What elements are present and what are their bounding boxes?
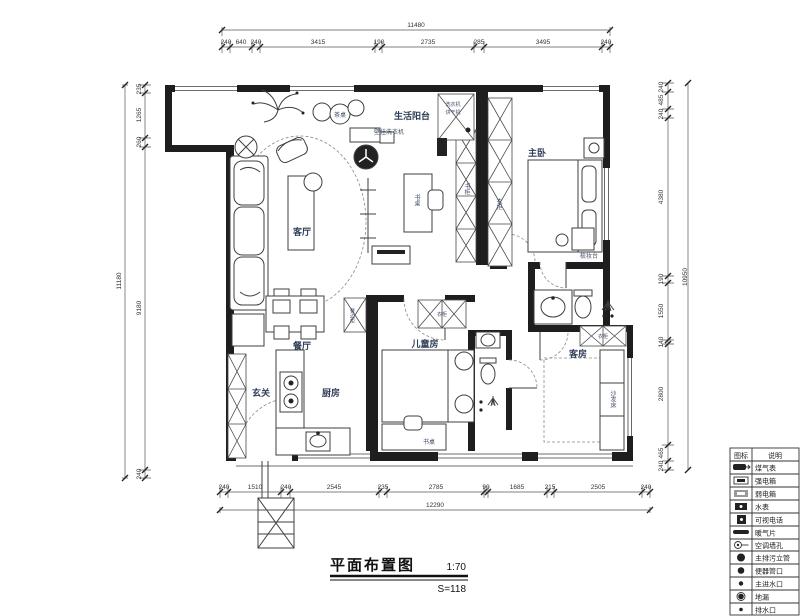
label-wall-washer: 壁挂洗衣机: [374, 128, 404, 136]
dim-bottom-10: 240: [641, 484, 652, 491]
side-table-square: [232, 314, 264, 346]
drain-outlet-icon: [739, 608, 743, 612]
dim-bottom-4: 235: [378, 484, 389, 491]
dim-right-1: 485: [658, 94, 665, 105]
window-right-master: [602, 168, 611, 240]
dining-furniture: [266, 289, 324, 339]
drying-rack: [360, 178, 376, 253]
toilet-pipe-icon: [738, 567, 745, 574]
dim-bottom-1: 1510: [248, 484, 263, 491]
entry-steps: [258, 461, 294, 548]
gas-meter-icon: [733, 464, 750, 470]
kids-chair: [404, 416, 422, 430]
dim-bottom-8: 215: [545, 484, 556, 491]
dim-top-4: 190: [374, 39, 385, 46]
tv-stand: [372, 246, 410, 264]
dim-right-8: 465: [658, 447, 665, 458]
window-top-living: [290, 84, 354, 93]
legend-label: 主进水口: [755, 580, 783, 589]
pillow: [455, 395, 473, 413]
label-kids-room: 儿童房: [410, 338, 438, 349]
window-right-guest: [626, 358, 634, 436]
dimension-right: 10950 240 485 240 4380 190 1550 140 2800…: [658, 80, 691, 473]
master-wardrobe-cabinet: [488, 98, 512, 266]
dim-bottom-9: 2505: [591, 484, 606, 491]
legend-label: 可视电话: [755, 516, 783, 525]
tea-table-chair: [313, 103, 331, 121]
label-bookcase: 书柜: [463, 182, 470, 196]
water-heater: [437, 138, 447, 156]
label-living-room: 客厅: [292, 226, 311, 237]
label-sideboard: 餐边柜: [349, 307, 355, 324]
dim-bottom-2: 240: [281, 484, 292, 491]
radiator-icon: [733, 530, 749, 534]
guest-room-door: [540, 332, 568, 360]
label-guest-wardrobe: 衣柜: [598, 333, 608, 340]
dim-right-9: 240: [658, 460, 665, 471]
toilet: [480, 358, 496, 384]
shared-bath-fixtures: [476, 332, 500, 412]
dim-top-3: 3415: [311, 39, 326, 46]
label-kitchen: 厨房: [322, 387, 340, 398]
study-chair: [428, 190, 443, 210]
legend-label: 煤气表: [755, 464, 776, 473]
master-bath-door: [540, 262, 566, 288]
nightstand: [584, 138, 604, 158]
dim-right-4: 190: [658, 273, 665, 284]
label-master-bedroom: 主卧: [528, 147, 546, 158]
label-entry: 玄关: [252, 387, 270, 398]
sideboard-cabinet: [344, 298, 366, 332]
bookcase-cabinet: [456, 130, 476, 262]
entry-shoe-cabinet: [228, 354, 246, 458]
tea-table-chair: [348, 100, 364, 116]
drawing-sub: S=118: [438, 584, 467, 595]
kids-room-furniture: [382, 350, 474, 450]
study-furniture: [404, 174, 443, 232]
sofa: [230, 156, 268, 310]
legend-header-icon: 图标: [734, 451, 748, 460]
label-balcony-cabinet-1: 洗衣机: [445, 101, 460, 108]
window-top-balcony: [175, 84, 237, 93]
pillow: [582, 166, 596, 202]
label-master-wardrobe: 衣柜: [495, 197, 502, 211]
window-bottom-kids: [438, 451, 522, 462]
window-bottom-guest: [538, 451, 612, 462]
pillow: [455, 352, 473, 370]
dim-left-3: 9180: [136, 300, 143, 315]
dim-right-0: 240: [658, 81, 665, 92]
floor-drain-icon: [737, 593, 745, 601]
dim-left-0: 235: [136, 83, 143, 94]
dim-left-4: 240: [136, 468, 143, 479]
window-top-master: [543, 84, 599, 93]
legend-label: 空调墙孔: [755, 541, 783, 550]
drawing-scale: 1:70: [447, 562, 467, 573]
toilet: [574, 290, 592, 318]
title-block: 平面布置图 1:70 S=118: [330, 556, 468, 595]
label-sofa-bed: 沙发床: [609, 390, 616, 409]
dim-bottom-7: 1685: [510, 484, 525, 491]
dim-right-5: 1550: [658, 303, 665, 318]
weak-power-box-icon: [734, 490, 748, 497]
label-kids-desk: 书桌: [423, 438, 435, 446]
legend-label: 暖气片: [755, 529, 776, 538]
balcony-corner-cabinet: [438, 94, 474, 140]
label-tea-table: 茶桌: [334, 111, 346, 119]
master-bath-fixtures: [534, 290, 614, 324]
dim-bottom-0: 240: [219, 484, 230, 491]
dim-right-2: 240: [658, 108, 665, 119]
dim-top-5: 2735: [421, 39, 436, 46]
shower-drain: [479, 396, 498, 412]
dim-bottom-total: 12290: [426, 502, 444, 509]
dimension-left: 11180 235 1265 260 9180 240: [116, 82, 151, 481]
label-living-balcony: 生活阳台: [394, 110, 430, 121]
dim-bottom-6: 90: [482, 484, 490, 491]
water-meter-icon: [735, 503, 747, 510]
legend-label: 排水口: [755, 606, 776, 615]
video-intercom-icon: [737, 515, 746, 524]
main-sewage-riser-icon: [737, 554, 745, 562]
dim-left-2: 260: [136, 136, 143, 147]
legend-header-desc: 说明: [768, 451, 782, 460]
drawing-title: 平面布置图: [330, 556, 415, 574]
strong-power-box-icon: [734, 477, 748, 484]
main-water-inlet-icon: [739, 581, 743, 585]
dim-top-1: 640: [236, 39, 247, 46]
dim-right-total: 10950: [682, 268, 689, 286]
dim-left-1: 1265: [136, 107, 143, 122]
ac-wall-hole-icon: [735, 542, 749, 549]
label-study-desk: 书桌: [413, 193, 420, 207]
kitchen-furniture: [276, 350, 350, 455]
label-guest-room: 客房: [568, 348, 587, 359]
guest-bed-outline: [544, 358, 600, 442]
vanity-counter: [534, 290, 572, 324]
dim-top-8: 240: [601, 39, 612, 46]
dim-right-7: 2800: [658, 386, 665, 401]
legend-label: 强电箱: [755, 477, 776, 486]
dim-top-7: 3495: [536, 39, 551, 46]
dim-top-0: 240: [221, 39, 232, 46]
dim-right-6: 140: [658, 336, 665, 347]
label-balcony-cabinet-2: 烘干机: [445, 109, 460, 116]
dim-top-total: 11480: [407, 22, 425, 29]
label-dresser: 梳妆台: [580, 252, 598, 260]
dim-bottom-3: 2545: [327, 484, 342, 491]
plant: [252, 90, 305, 122]
legend-label: 地漏: [755, 593, 769, 602]
legend-table: 图标 说明 煤气表 强电箱 弱电箱 水表 可视电话 暖气片 空调墙孔 主排污立管…: [730, 448, 799, 615]
dim-top-6: 285: [474, 39, 485, 46]
shared-bath-door: [509, 360, 537, 388]
label-kids-wardrobe: 衣柜: [437, 311, 447, 318]
side-table-round: [235, 136, 257, 158]
dim-left-total: 11180: [116, 272, 123, 289]
legend-label: 弱电箱: [755, 490, 776, 499]
armchair: [275, 136, 310, 165]
label-dining-room: 餐厅: [292, 340, 311, 351]
coffee-table: [288, 173, 322, 250]
legend-label: 水表: [755, 503, 769, 512]
dim-bottom-5: 2785: [429, 484, 444, 491]
dim-right-3: 4380: [658, 189, 665, 204]
legend-label: 便器管口: [755, 567, 783, 576]
dimension-top: 11480 240 640 240 3415 190 2735 285 3495…: [219, 22, 613, 53]
floor-plan-drawing: 生活阳台 主卧 客厅 餐厅 玄关 厨房 儿童房 客房 壁挂洗衣机 茶桌 书桌 书…: [0, 0, 800, 616]
dim-top-2: 240: [251, 39, 262, 46]
floor-plan-page: 生活阳台 主卧 客厅 餐厅 玄关 厨房 儿童房 客房 壁挂洗衣机 茶桌 书桌 书…: [0, 0, 800, 616]
legend-label: 主排污立管: [755, 554, 790, 563]
